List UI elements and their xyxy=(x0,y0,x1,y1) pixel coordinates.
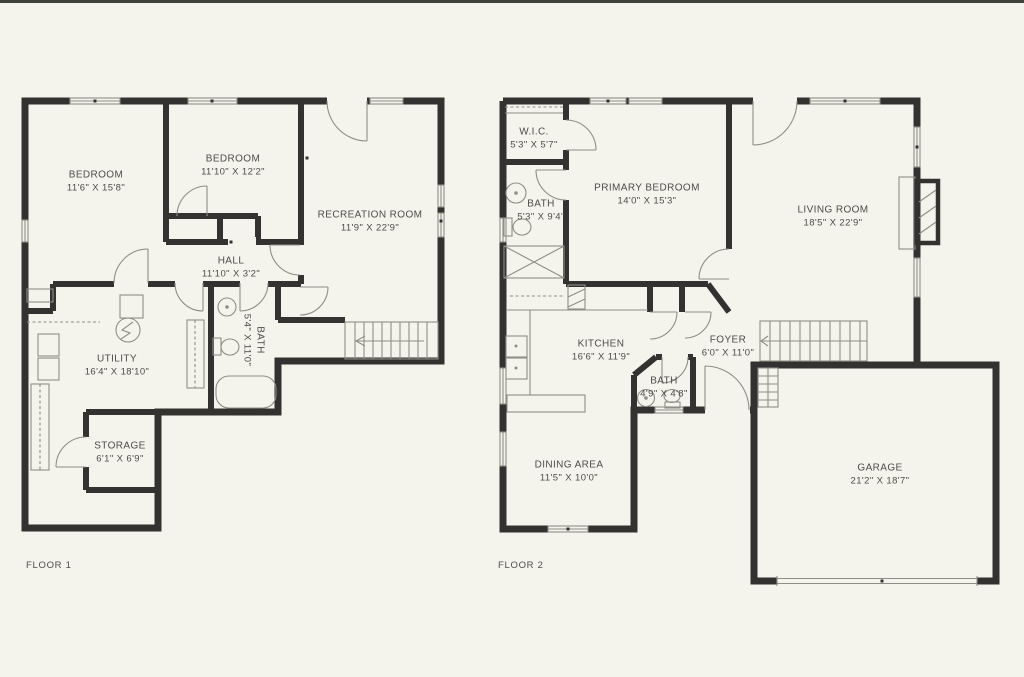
room-name: HALL xyxy=(202,256,260,269)
room-dims: 6'1" X 6'9" xyxy=(94,453,146,466)
floorplan-drawing xyxy=(0,0,1024,677)
room-dims: 14'0" X 15'3" xyxy=(594,195,700,208)
floor2-label: FLOOR 2 xyxy=(498,560,544,571)
room-name: UTILITY xyxy=(85,354,150,367)
room-name: RECREATION ROOM xyxy=(318,210,423,223)
room-name: FOYER xyxy=(702,335,755,348)
room-name: DINING AREA xyxy=(535,460,604,473)
room-name: GARAGE xyxy=(851,463,910,476)
room-dims: 18'5" X 22'9" xyxy=(797,217,868,230)
room-label-bath-upper: BATH 5'3" X 9'4" xyxy=(517,199,565,224)
room-label-garage: GARAGE 21'2" X 18'7" xyxy=(851,463,910,488)
room-dims: 5'3" X 9'4" xyxy=(517,211,565,224)
room-label-storage: STORAGE 6'1" X 6'9" xyxy=(94,441,146,466)
room-name: BATH xyxy=(517,199,565,212)
room-dims: 11'9" X 22'9" xyxy=(318,222,423,235)
room-label-hall: HALL 11'10" X 3'2" xyxy=(202,256,260,281)
room-dims: 5'4" X 11'0" xyxy=(241,314,254,367)
room-label-bedroom-1: BEDROOM 11'6" X 15'8" xyxy=(67,170,125,195)
room-label-dining-area: DINING AREA 11'5" X 10'0" xyxy=(535,460,604,485)
room-dims: 11'10" X 3'2" xyxy=(202,268,260,281)
room-name: STORAGE xyxy=(94,441,146,454)
room-dims: 21'2" X 18'7" xyxy=(851,475,910,488)
room-name: BATH xyxy=(253,314,266,367)
room-label-foyer: FOYER 6'0" X 11'0" xyxy=(702,335,755,360)
wic-closet-icon xyxy=(505,107,563,113)
floorplan-canvas: BEDROOM 11'6" X 15'8" BEDROOM 11'10" X 1… xyxy=(0,0,1024,677)
room-label-utility: UTILITY 16'4" X 18'10" xyxy=(85,354,150,379)
floor1-stairs-icon xyxy=(345,322,438,359)
room-label-kitchen: KITCHEN 16'6" X 11'9" xyxy=(572,339,630,364)
room-name: PRIMARY BEDROOM xyxy=(594,183,700,196)
room-label-living-room: LIVING ROOM 18'5" X 22'9" xyxy=(797,205,868,230)
room-dims: 16'6" X 11'9" xyxy=(572,351,630,364)
room-dims: 5'3" X 5'7" xyxy=(510,139,558,152)
room-dims: 16'4" X 18'10" xyxy=(85,366,150,379)
room-dims: 6'0" X 11'0" xyxy=(702,347,755,360)
room-dims: 11'10" X 12'2" xyxy=(201,166,265,179)
room-dims: 11'5" X 10'0" xyxy=(535,472,604,485)
room-dims: 11'6" X 15'8" xyxy=(67,182,125,195)
room-label-wic: W.I.C. 5'3" X 5'7" xyxy=(510,127,558,152)
room-name: LIVING ROOM xyxy=(797,205,868,218)
room-dims: 4'9" X 4'8" xyxy=(640,388,688,401)
room-label-bedroom-2: BEDROOM 11'10" X 12'2" xyxy=(201,154,265,179)
room-name: KITCHEN xyxy=(572,339,630,352)
room-label-bath-small: BATH 4'9" X 4'8" xyxy=(640,376,688,401)
floor1-label: FLOOR 1 xyxy=(26,560,72,571)
room-name: W.I.C. xyxy=(510,127,558,140)
room-name: BEDROOM xyxy=(67,170,125,183)
room-label-primary-bedroom: PRIMARY BEDROOM 14'0" X 15'3" xyxy=(594,183,700,208)
room-name: BATH xyxy=(640,376,688,389)
room-label-recreation-room: RECREATION ROOM 11'9" X 22'9" xyxy=(318,210,423,235)
room-label-bath-floor1: BATH 5'4" X 11'0" xyxy=(241,314,266,367)
room-name: BEDROOM xyxy=(201,154,265,167)
fireplace-icon xyxy=(899,177,938,249)
